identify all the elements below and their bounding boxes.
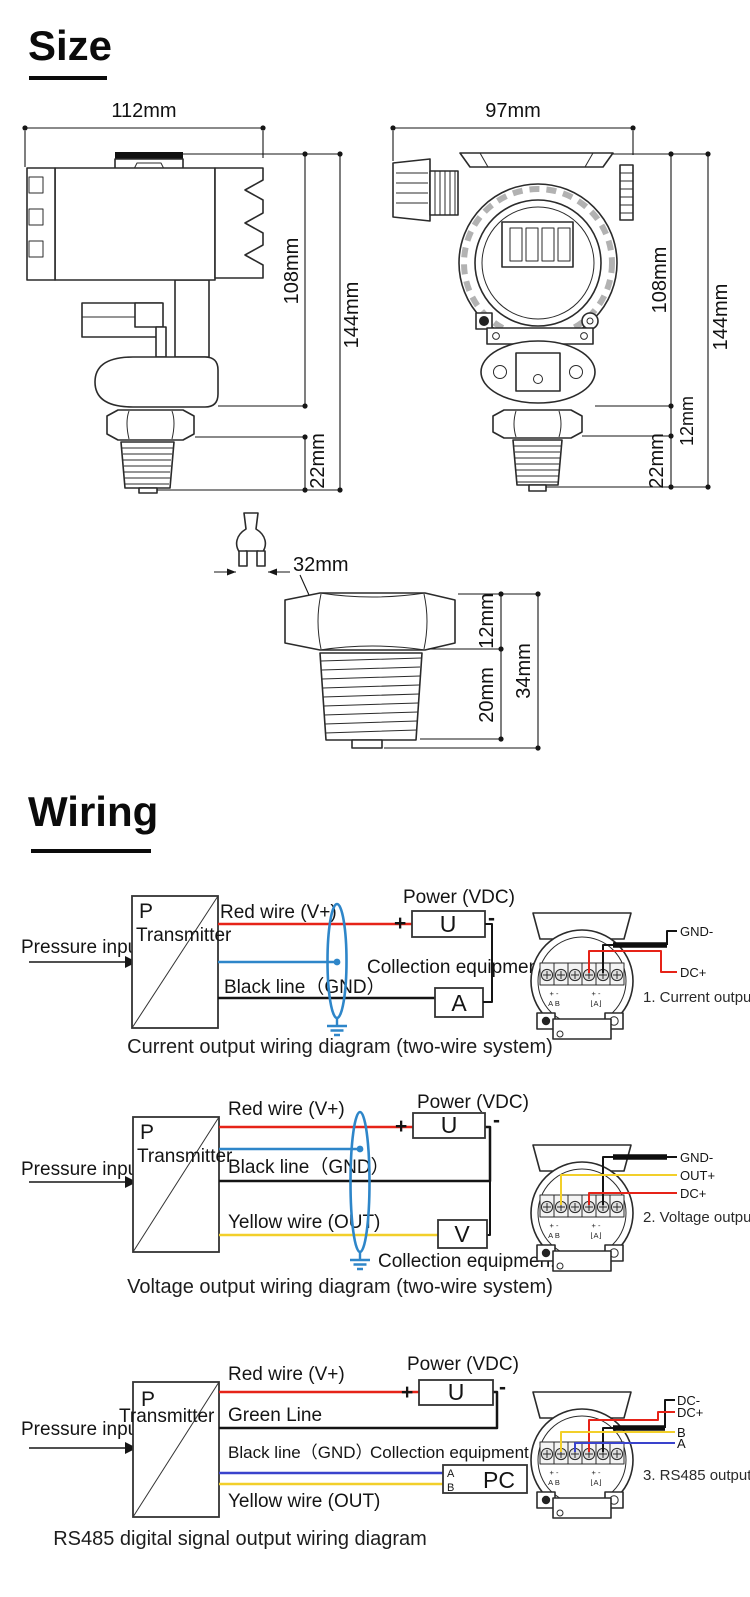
wiring-section-title: Wiring [28, 788, 158, 836]
d1-red-wire-label: Red wire (V+) [220, 902, 337, 923]
thread-fitting-drawing: 32mm 12mm 20mm 34mm [180, 505, 570, 760]
d3-green-line-label: Green Line [228, 1405, 322, 1426]
dim-hex-height: 12mm [476, 593, 498, 649]
product-spec-page: Size 112mm [0, 0, 750, 1597]
d1-transmitter-p: P [139, 900, 153, 923]
d3-pc-label: PC [483, 1467, 515, 1493]
d1-ammeter-label: A [451, 990, 467, 1016]
current-output-diagram: + - + - A B ⌊A⌋ Pressure input P Transmi… [15, 885, 745, 1045]
d2-plus: + [395, 1115, 407, 1138]
dim-front-width: 97mm [485, 100, 541, 122]
d1-out-dc-label: DC+ [680, 965, 706, 980]
rs485-output-caption: RS485 digital signal output wiring diagr… [15, 1528, 465, 1551]
wrench-icon [237, 513, 266, 566]
d1-black-wire-label: Black line（GND） [224, 976, 386, 998]
d1-output-type: 1. Current output [643, 989, 750, 1006]
d2-collection-label: Collection equipmen. [378, 1251, 555, 1272]
d1-out-gnd-label: GND- [680, 924, 713, 939]
d1-u-label: U [440, 911, 457, 937]
d3-output-type: 3. RS485 output [643, 1467, 750, 1484]
dim-thread-length: 20mm [476, 667, 498, 723]
transmitter-side-view-drawing: 112mm [15, 95, 360, 500]
d1-terminal-block [531, 913, 633, 1039]
d2-out-out-label: OUT+ [680, 1168, 715, 1183]
d1-collection-label: Collection equipment [367, 957, 545, 978]
d2-minus: - [493, 1109, 500, 1132]
d3-terminal-block [531, 1392, 633, 1518]
d3-power-label: Power (VDC) [407, 1354, 519, 1375]
fitting-thread [320, 653, 422, 748]
d2-yellow-wire-label: Yellow wire (OUT) [228, 1212, 380, 1233]
dim-front-bracket: 12mm [677, 396, 697, 446]
transmitter-side-view [27, 152, 263, 493]
d2-u-label: U [441, 1112, 458, 1138]
d3-u-label: U [448, 1379, 465, 1405]
d3-collection-label: Collection equipment [370, 1443, 529, 1462]
d3-minus: - [499, 1376, 506, 1399]
size-title-underline [29, 76, 107, 80]
d2-black-wire-label: Black line（GND） [228, 1156, 390, 1178]
d3-out-a-label: A [677, 1436, 686, 1451]
dim-side-width: 112mm [111, 100, 176, 122]
voltage-output-diagram: Pressure input P Transmitter Red wire (V… [15, 1085, 745, 1277]
d3-pc-b-pin: B [447, 1482, 454, 1494]
dim-total-length: 34mm [513, 643, 535, 699]
d3-yellow-wire-label: Yellow wire (OUT) [228, 1491, 380, 1512]
dim-side-thread: 22mm [307, 433, 329, 489]
dim-front-body-height: 108mm [649, 247, 671, 314]
transmitter-front-view [393, 153, 633, 491]
voltage-output-caption: Voltage output wiring diagram (two-wire … [15, 1276, 665, 1299]
d3-plus: + [401, 1381, 413, 1404]
d2-output-type: 2. Voltage output [643, 1209, 750, 1226]
d1-plus: + [394, 912, 406, 935]
d2-terminal-block [531, 1145, 633, 1271]
dim-wrench-flat: 32mm [293, 554, 349, 576]
d1-pressure-input-label: Pressure input [21, 937, 144, 958]
size-section-title: Size [28, 22, 112, 70]
current-output-caption: Current output wiring diagram (two-wire … [15, 1036, 665, 1059]
d2-transmitter-label: Transmitter [137, 1146, 233, 1167]
wiring-title-underline [31, 849, 151, 853]
d3-red-wire-label: Red wire (V+) [228, 1364, 345, 1385]
d3-pc-a-pin: A [447, 1468, 455, 1480]
transmitter-front-view-drawing: 97mm [380, 95, 735, 505]
d2-out-gnd-label: GND- [680, 1150, 713, 1165]
d2-transmitter-p: P [140, 1121, 154, 1144]
dim-front-total-height: 144mm [710, 284, 732, 351]
dim-side-total-height: 144mm [341, 282, 363, 349]
d1-ground-icon [327, 1018, 347, 1035]
fitting-hex-nut [285, 593, 455, 650]
d2-power-label: Power (VDC) [417, 1092, 529, 1113]
d3-out-dcplus-label: DC+ [677, 1405, 703, 1420]
d2-out-dc-label: DC+ [680, 1186, 706, 1201]
dim-front-thread: 22mm [646, 433, 668, 489]
d3-transmitter-label: Transmitter [119, 1406, 215, 1427]
d2-red-wire-label: Red wire (V+) [228, 1099, 345, 1120]
d1-transmitter-label: Transmitter [136, 925, 232, 946]
d3-black-wire-label: Black line（GND） [228, 1443, 373, 1462]
d1-power-label: Power (VDC) [403, 887, 515, 908]
dim-side-body-height: 108mm [281, 238, 303, 305]
d2-ground-icon [350, 1252, 370, 1269]
rs485-output-diagram: Pressure input P Transmitter Red wire (V… [15, 1330, 745, 1525]
d2-voltmeter-label: V [454, 1221, 470, 1247]
